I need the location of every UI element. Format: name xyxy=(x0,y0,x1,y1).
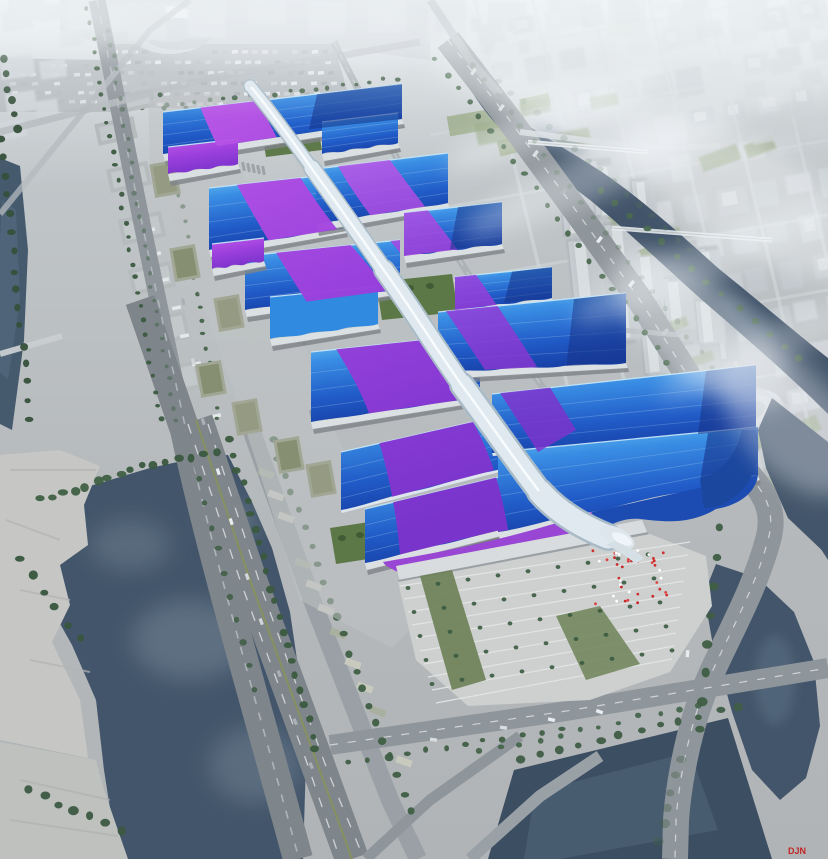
svg-text:DJN: DJN xyxy=(788,846,806,856)
